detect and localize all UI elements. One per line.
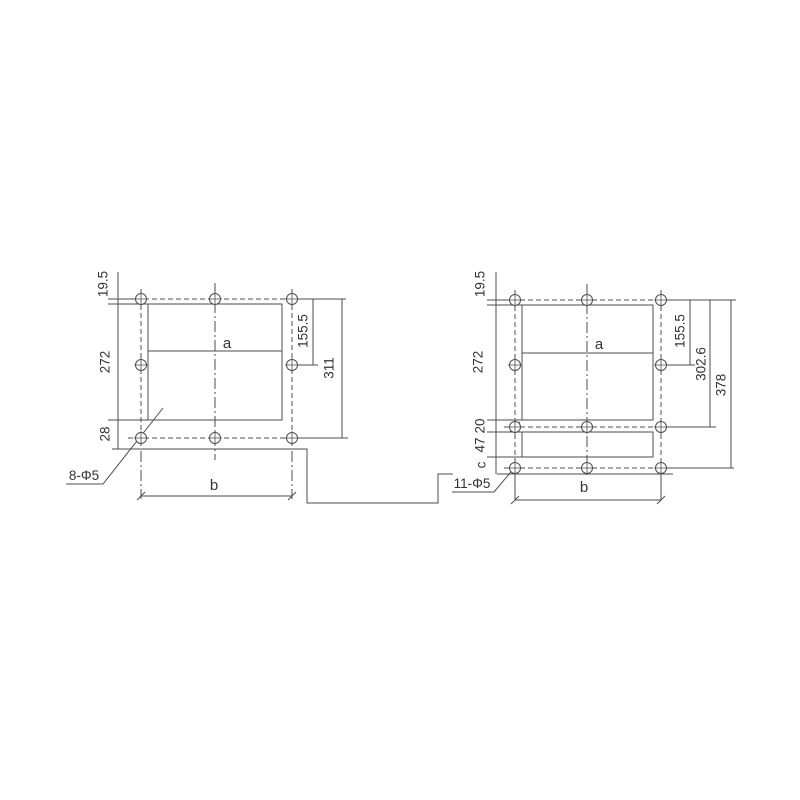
- right-width-label: b: [580, 479, 588, 496]
- left-dim-inner-height-label: 155.5: [296, 314, 311, 348]
- left-dim-outer-height-label: 311: [322, 357, 337, 379]
- right-dim-bottom-margin-label: c: [474, 461, 489, 468]
- left-outline-step-line: [112, 449, 453, 503]
- left-vertical-centerline: [141, 283, 292, 499]
- left-width-label: b: [210, 477, 218, 494]
- right-dim-top-offset-label: 19.5: [473, 271, 488, 297]
- left-hole-spec-label: 8-Φ5: [69, 468, 99, 483]
- right-hole-centerlines: [504, 290, 672, 472]
- right-mounting-holes: [508, 293, 668, 475]
- left-dimension-lines: [108, 272, 348, 496]
- right-dim-inner-height-label: 155.5: [673, 314, 688, 348]
- left-cutout-label: a: [223, 335, 232, 352]
- right-dim-height-label: 272: [471, 351, 486, 374]
- right-dimension-lines: [487, 272, 736, 500]
- right-dim-mid-height-label: 302.6: [694, 347, 709, 381]
- panel-cutout-drawing: 19.5 272 28 155.5 311 a b 8-Φ5: [0, 0, 800, 800]
- right-dim-outer-height-label: 378: [714, 374, 729, 397]
- right-hole-centermarks: [508, 293, 668, 475]
- right-dim-small-height-label: 47: [473, 437, 488, 452]
- left-mounting-holes: [134, 292, 299, 445]
- left-hole-centermarks: [134, 292, 299, 445]
- left-dim-top-offset-label: 19.5: [96, 271, 111, 297]
- left-dim-height-label: 272: [98, 351, 113, 374]
- left-dim-bottom-offset-label: 28: [98, 426, 113, 441]
- right-dim-gap-label: 20: [473, 418, 488, 433]
- right-cutout-label: a: [595, 336, 604, 353]
- left-view: 19.5 272 28 155.5 311 a b 8-Φ5: [66, 271, 453, 503]
- right-hole-spec-label: 11-Φ5: [454, 476, 491, 491]
- technical-drawing-canvas: 19.5 272 28 155.5 311 a b 8-Φ5: [0, 0, 800, 800]
- right-view: 19.5 272 20 47 c 155.5 302.6 378 a b 11-…: [452, 271, 736, 504]
